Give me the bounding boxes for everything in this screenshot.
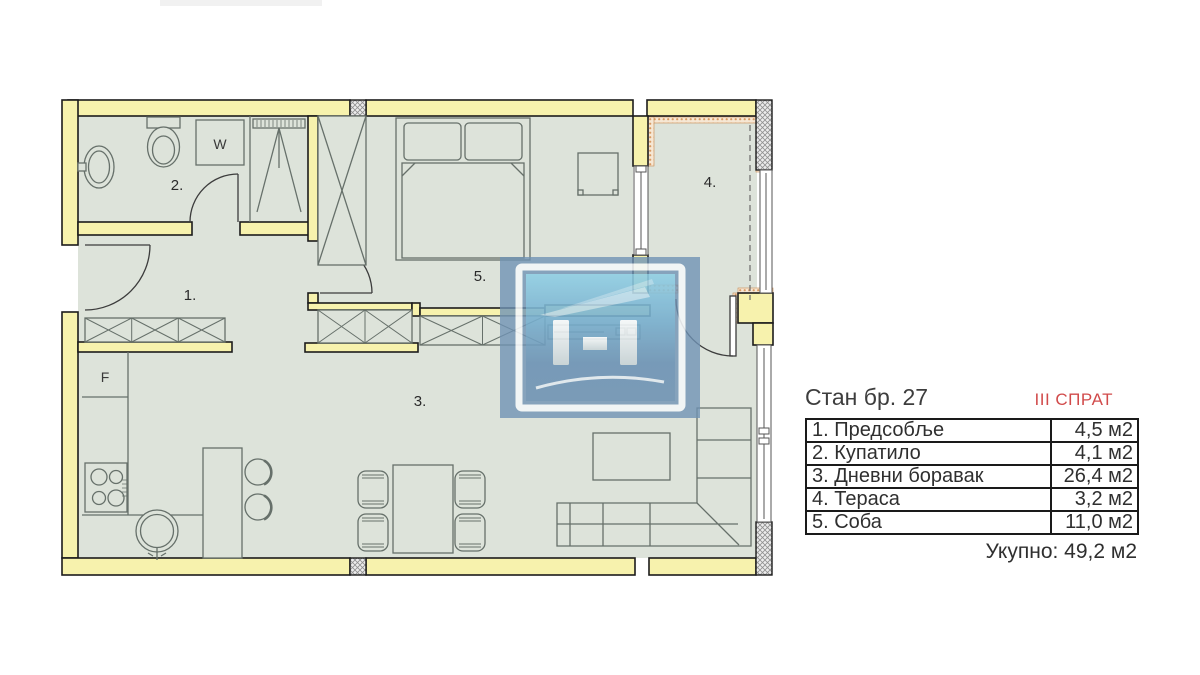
room-name-cell: 1. Предсобље xyxy=(806,419,1051,442)
table-row: 4. Тераса 3,2 м2 xyxy=(806,488,1138,511)
screenshot-root: 1. 2. 3. 4. 5. W F xyxy=(0,0,1200,675)
info-panel: Стан бр. 27 III СПРАТ 1. Предсобље 4,5 м… xyxy=(805,384,1139,564)
coffee-table xyxy=(593,433,670,480)
toilet xyxy=(147,117,180,167)
info-header: Стан бр. 27 III СПРАТ xyxy=(805,384,1139,411)
table-row: 3. Дневни боравак 26,4 м2 xyxy=(806,465,1138,488)
room-label-hallway: 1. xyxy=(184,287,197,304)
double-bed xyxy=(396,118,530,260)
table-row: 1. Предсобље 4,5 м2 xyxy=(806,419,1138,442)
hallway-wardrobe xyxy=(85,318,225,342)
room-name-cell: 5. Соба xyxy=(806,511,1051,534)
dining-table xyxy=(393,465,453,553)
tall-wardrobe xyxy=(318,116,366,265)
table-row: 2. Купатило 4,1 м2 xyxy=(806,442,1138,465)
kitchen-island xyxy=(203,448,242,558)
total-area: Укупно: 49,2 м2 xyxy=(805,540,1139,564)
room-name-cell: 3. Дневни боравак xyxy=(806,465,1051,488)
apartment-title: Стан бр. 27 xyxy=(805,384,928,411)
washing-machine-label: W xyxy=(213,136,227,152)
room-area-cell: 11,0 м2 xyxy=(1051,511,1138,534)
table-row: 5. Соба 11,0 м2 xyxy=(806,511,1138,534)
room-area-cell: 4,5 м2 xyxy=(1051,419,1138,442)
room-label-bathroom: 2. xyxy=(171,177,184,194)
area-table: 1. Предсобље 4,5 м2 2. Купатило 4,1 м2 3… xyxy=(805,418,1139,535)
fridge-label: F xyxy=(101,369,110,385)
nightstand xyxy=(578,153,618,195)
room-name-cell: 4. Тераса xyxy=(806,488,1051,511)
room-label-terrace: 4. xyxy=(704,174,717,191)
room-area-cell: 4,1 м2 xyxy=(1051,442,1138,465)
room-label-living: 3. xyxy=(414,393,427,410)
stove xyxy=(85,463,127,512)
room-area-cell: 3,2 м2 xyxy=(1051,488,1138,511)
room-name-cell: 2. Купатило xyxy=(806,442,1051,465)
bedroom-wardrobe-left xyxy=(318,310,412,343)
room-label-bedroom: 5. xyxy=(474,268,487,285)
watermark-logo xyxy=(500,257,700,418)
floor-badge: III СПРАТ xyxy=(1035,390,1140,410)
room-area-cell: 26,4 м2 xyxy=(1051,465,1138,488)
